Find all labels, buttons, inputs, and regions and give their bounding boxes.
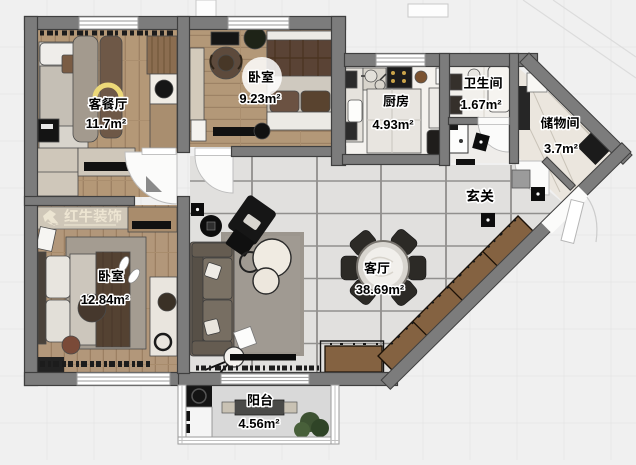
svg-text:9.23m²: 9.23m²	[239, 91, 281, 106]
svg-text:3.7m²: 3.7m²	[544, 141, 579, 156]
svg-text:1.67m²: 1.67m²	[460, 97, 502, 112]
svg-text:4.56m²: 4.56m²	[238, 416, 280, 431]
svg-text:12.84m²: 12.84m²	[81, 292, 130, 307]
svg-text:38.69m²: 38.69m²	[356, 282, 405, 297]
svg-text:11.7m²: 11.7m²	[86, 116, 127, 131]
svg-text:4.93m²: 4.93m²	[372, 117, 414, 132]
